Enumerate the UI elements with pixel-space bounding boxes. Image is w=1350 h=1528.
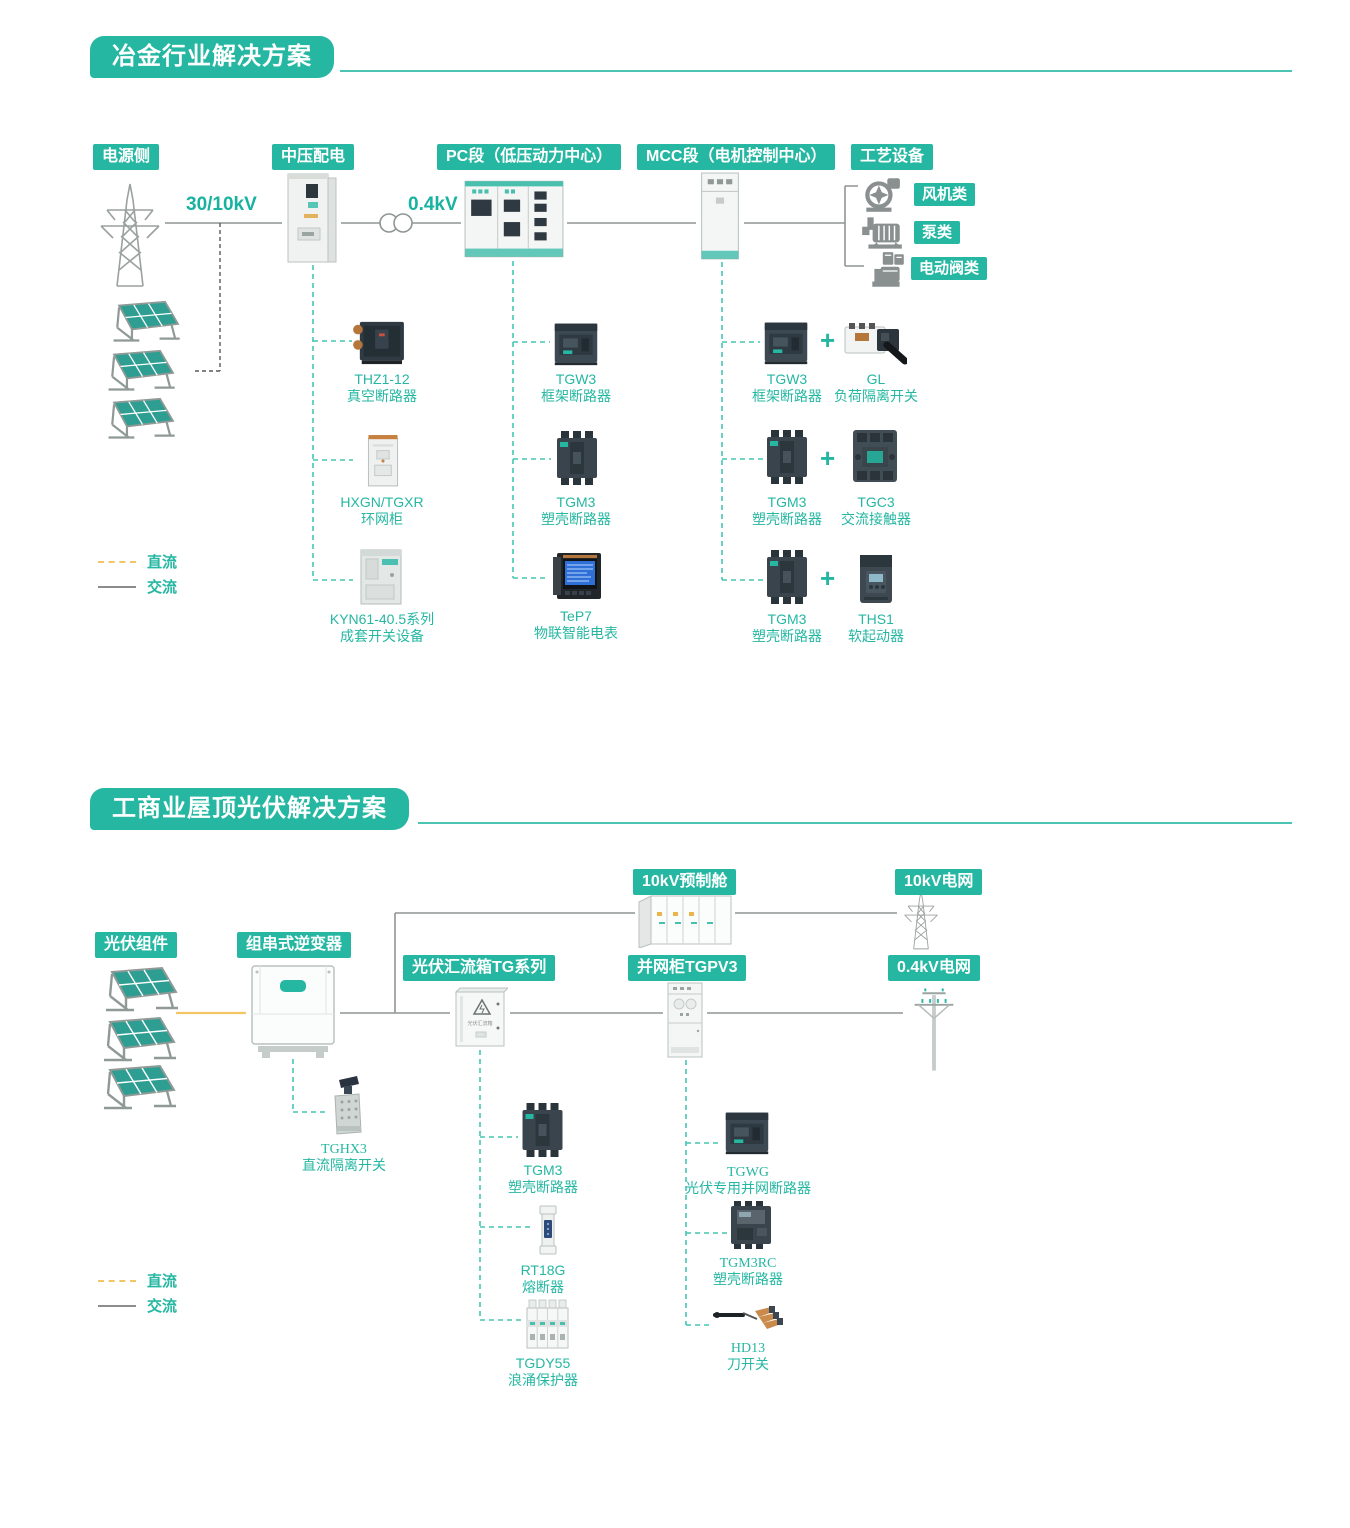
- ring-main-unit-image: [366, 434, 400, 488]
- surge-protector-image: [525, 1298, 570, 1352]
- voltage-label-0-4kv: 0.4kV: [408, 194, 458, 216]
- badge-valve-type: 电动阀类: [911, 257, 987, 280]
- motor-valve-icon: [866, 250, 908, 292]
- solar-panel-image: [96, 1064, 176, 1114]
- badge-power-side: 电源侧: [93, 144, 159, 170]
- legend-section1: 直流 交流: [98, 549, 177, 599]
- product-label-tghx3: TGHX3 直流隔离开关: [302, 1141, 386, 1175]
- fan-icon: [860, 176, 902, 214]
- combiner-box-image: [452, 982, 508, 1048]
- fuse-image: [536, 1204, 560, 1256]
- mccb-image: [765, 549, 809, 605]
- legend-dc: 直流: [98, 549, 177, 574]
- section1-title: 冶金行业解决方案: [90, 36, 334, 78]
- knife-switch-image: [713, 1303, 783, 1333]
- acb-image: [552, 318, 600, 368]
- plus-sign: +: [820, 445, 835, 471]
- product-label-tgm3-pc: TGM3 塑壳断路器: [541, 494, 611, 528]
- badge-pv-modules: 光伏组件: [95, 932, 177, 958]
- string-inverter-image: [248, 962, 338, 1059]
- product-label-ths1: THS1 软起动器: [848, 611, 904, 645]
- prefab-cabin-image: [637, 892, 733, 948]
- product-label-hxgn-tgxr: HXGN/TGXR 环网柜: [340, 494, 423, 528]
- product-label-tep7: TeP7 物联智能电表: [534, 608, 618, 642]
- mccb-image: [520, 1102, 565, 1158]
- solar-panel-image: [100, 349, 176, 395]
- product-label-tgm3-mcc1: TGM3 塑壳断路器: [752, 494, 822, 528]
- mccb-rc-image: [729, 1200, 773, 1250]
- ac-line-sample: [98, 586, 136, 588]
- product-label-thz1-12: THZ1-12 真空断路器: [347, 371, 417, 405]
- badge-string-inverter: 组串式逆变器: [237, 932, 351, 958]
- pump-icon: [858, 213, 906, 253]
- badge-grid-tie-cabinet: 并网柜TGPV3: [628, 955, 746, 981]
- transmission-tower-image: [95, 178, 165, 288]
- mccb-image: [555, 430, 599, 486]
- combiner-box-tiny-label: 光伏汇流箱: [467, 1020, 492, 1027]
- product-label-tgdy55: TGDY55 浪涌保护器: [508, 1355, 578, 1389]
- product-label-tgm3-mcc2: TGM3 塑壳断路器: [752, 611, 822, 645]
- acb-image: [762, 317, 810, 367]
- soft-starter-image: [856, 553, 896, 605]
- solar-panel-image: [96, 1016, 176, 1066]
- grid-tower-image: [895, 888, 947, 950]
- legend-ac: 交流: [98, 1293, 177, 1318]
- product-label-gl: GL 负荷隔离开关: [834, 371, 918, 405]
- ac-line-sample: [98, 1305, 136, 1307]
- badge-pc-section: PC段（低压动力中心）: [437, 144, 621, 170]
- dc-isolator-image: [327, 1074, 365, 1136]
- solution-diagram-page: 冶金行业解决方案 电源侧 中压配电 PC段（低压动力中心） MCC段（电机控制中…: [0, 0, 1350, 1528]
- plus-sign: +: [820, 327, 835, 353]
- legend-section2: 直流 交流: [98, 1268, 177, 1318]
- badge-mcc-section: MCC段（电机控制中心）: [637, 144, 835, 170]
- ac-contactor-image: [850, 427, 900, 485]
- section2-title: 工商业屋顶光伏解决方案: [90, 788, 409, 830]
- load-isolation-switch-image: [843, 321, 907, 367]
- badge-10kv-grid: 10kV电网: [895, 869, 982, 895]
- connector-lines: [0, 0, 1350, 1528]
- plus-sign: +: [820, 565, 835, 591]
- product-label-tgw3-mcc: TGW3 框架断路器: [752, 371, 822, 405]
- mv-cabinet-image: [284, 172, 339, 264]
- switchgear-image: [358, 546, 404, 608]
- utility-pole-image: [905, 983, 963, 1075]
- product-label-tgm3rc: TGM3RC 塑壳断路器: [713, 1255, 783, 1289]
- dc-line-sample: [98, 1280, 136, 1282]
- legend-dc: 直流: [98, 1268, 177, 1293]
- legend-ac: 交流: [98, 574, 177, 599]
- pc-switchboard-image: [463, 177, 565, 261]
- solar-panel-image: [105, 300, 181, 346]
- badge-0-4kv-grid: 0.4kV电网: [888, 955, 980, 981]
- badge-10kv-prefab-cabin: 10kV预制舱: [633, 869, 736, 895]
- mccb-image: [765, 429, 809, 485]
- smart-meter-image: [551, 551, 603, 601]
- solar-panel-image: [98, 966, 178, 1016]
- badge-pump-type: 泵类: [914, 221, 960, 244]
- badge-mv-distribution: 中压配电: [272, 144, 354, 170]
- solar-panel-image: [100, 397, 176, 443]
- pv-grid-breaker-image: [723, 1106, 771, 1158]
- mcc-cabinet-image: [698, 171, 742, 263]
- product-label-hd13: HD13 刀开关: [727, 1340, 769, 1374]
- product-label-rt18g: RT18G 熔断器: [521, 1262, 566, 1296]
- badge-pv-combiner-box: 光伏汇流箱TG系列: [403, 955, 555, 981]
- dc-line-sample: [98, 561, 136, 563]
- product-label-kyn61: KYN61-40.5系列 成套开关设备: [330, 611, 434, 645]
- product-label-tgw3-pc: TGW3 框架断路器: [541, 371, 611, 405]
- product-label-tgwg: TGWG 光伏专用并网断路器: [685, 1164, 811, 1198]
- badge-fan-type: 风机类: [914, 183, 975, 206]
- vacuum-breaker-image: [350, 320, 408, 366]
- grid-tie-cabinet-image: [665, 981, 705, 1059]
- voltage-label-30-10kv: 30/10kV: [186, 194, 257, 216]
- badge-process-equipment: 工艺设备: [851, 144, 933, 170]
- product-label-tgc3: TGC3 交流接触器: [841, 494, 911, 528]
- product-label-tgm3-pv: TGM3 塑壳断路器: [508, 1162, 578, 1196]
